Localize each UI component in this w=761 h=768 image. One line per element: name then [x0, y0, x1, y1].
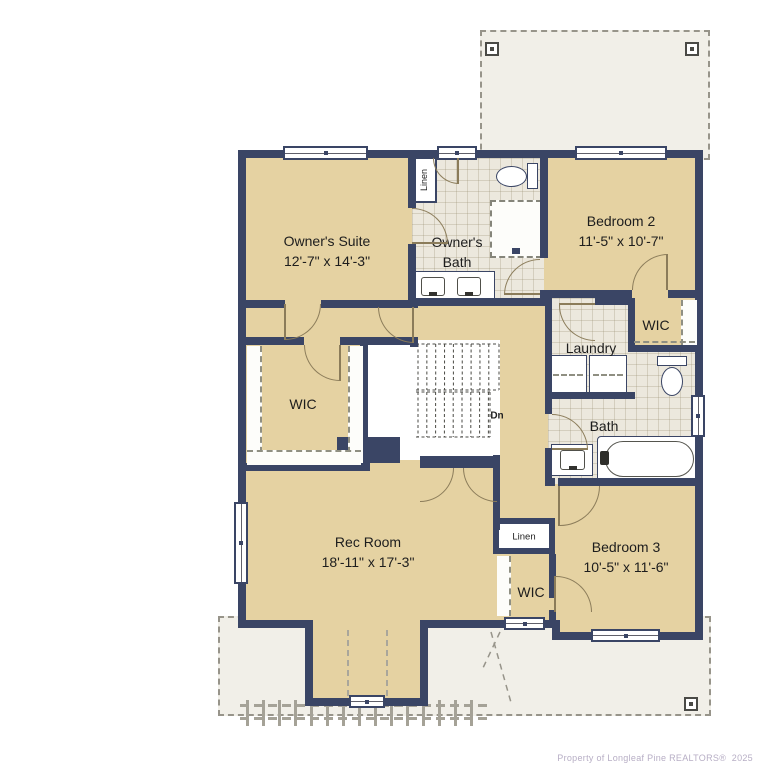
door-leaf [339, 345, 341, 381]
door-leaf [666, 254, 668, 290]
wall [420, 620, 428, 706]
wall [548, 290, 632, 298]
wall [628, 298, 635, 352]
wall [305, 620, 313, 706]
wall [408, 298, 548, 306]
shower-drain [512, 248, 520, 254]
wic-left-label: WIC [289, 394, 316, 414]
window [504, 617, 545, 630]
door-leaf [554, 576, 556, 612]
porch-post [685, 42, 699, 56]
wall [408, 244, 416, 306]
owners-suite-label: Owner's Suite 12'-7" x 14'-3" [284, 231, 371, 271]
porch-post [684, 697, 698, 711]
wall [238, 300, 285, 308]
wall [305, 698, 355, 706]
wall [545, 478, 555, 486]
room-dims: 12'-7" x 14'-3" [284, 251, 371, 271]
room-name: WIC [517, 582, 544, 602]
window [283, 146, 368, 160]
rec-room-label: Rec Room 18'-11" x 17'-3" [322, 532, 415, 572]
wall [668, 290, 703, 298]
wall [340, 337, 368, 345]
wall [658, 632, 703, 640]
window [234, 502, 248, 584]
porch-post [485, 42, 499, 56]
room-dims: 11'-5" x 10'-7" [578, 231, 663, 251]
toilet-bowl-bath [661, 367, 683, 396]
room-name: WIC [289, 394, 316, 414]
sink-owners-bath-left [421, 277, 445, 296]
wall [408, 158, 416, 208]
wall [428, 620, 508, 628]
sink-bath [560, 450, 585, 470]
room-name: Laundry [566, 338, 617, 358]
room-name: Bath [590, 416, 619, 436]
tub-basin [605, 441, 694, 477]
door-leaf [559, 303, 595, 305]
linen-hall-label: Linen [512, 532, 535, 543]
opening-dash-left [347, 630, 349, 696]
wall [493, 548, 555, 554]
room-name: Bedroom 3 [583, 537, 668, 557]
toilet-tank-bath [657, 356, 687, 366]
wall [360, 437, 400, 463]
wic-bedroom3-label: WIC [517, 582, 544, 602]
door-leaf [558, 486, 560, 526]
window [591, 629, 660, 642]
toilet-bowl-owners-bath [496, 166, 527, 187]
window [691, 395, 705, 437]
room-name: Bedroom 2 [578, 211, 663, 231]
room-dims: 18'-11" x 17'-3" [322, 552, 415, 572]
closet-shelf [681, 300, 697, 345]
stair-landing [398, 439, 495, 456]
wall [540, 158, 548, 258]
stairs-dn-label: Dn [490, 411, 503, 422]
room-name: Owner's Suite [284, 231, 371, 251]
closet-rod [634, 341, 695, 343]
room-name: WIC [642, 315, 669, 335]
door-leaf [457, 158, 459, 184]
window [575, 146, 667, 160]
wall [545, 399, 552, 414]
toilet-tank-owners-bath [527, 163, 538, 189]
closet-shelf [247, 346, 262, 463]
wall [420, 456, 497, 468]
closet-shelf [348, 346, 363, 463]
door-leaf [552, 448, 588, 450]
bedroom2-label: Bedroom 2 11'-5" x 10'-7" [578, 211, 663, 251]
wall [558, 478, 703, 486]
roof-outline-top [480, 30, 710, 160]
door-leaf [412, 307, 414, 343]
linen-bath-label: Linen [419, 169, 429, 191]
door-leaf [284, 304, 286, 340]
wall [552, 632, 594, 640]
wall [238, 620, 313, 628]
door-leaf [412, 242, 448, 244]
wall [628, 345, 703, 352]
room-dims: 10'-5" x 11'-6" [583, 557, 668, 577]
wall [545, 298, 552, 398]
closet-shelf [497, 556, 511, 616]
tub-faucet [600, 451, 609, 465]
closet-shelf [247, 450, 361, 465]
bath-label: Bath [590, 416, 619, 436]
washer-lid-dash [553, 374, 583, 376]
wic-bedroom2-label: WIC [642, 315, 669, 335]
wall [493, 518, 555, 524]
sink-owners-bath-right [457, 277, 481, 296]
opening-dash-right [386, 630, 388, 696]
dryer-lid-dash [593, 374, 623, 376]
window [349, 695, 385, 708]
bedroom3-label: Bedroom 3 10'-5" x 11'-6" [583, 537, 668, 577]
floor-plan: Owner's Suite 12'-7" x 14'-3" Owner's Ba… [0, 0, 761, 768]
watermark: Property of Longleaf Pine REALTORS® 2025 [557, 753, 753, 763]
room-name: Rec Room [322, 532, 415, 552]
laundry-label: Laundry [566, 338, 617, 358]
wall [545, 392, 635, 399]
door-leaf [504, 293, 540, 295]
wall [540, 290, 548, 298]
